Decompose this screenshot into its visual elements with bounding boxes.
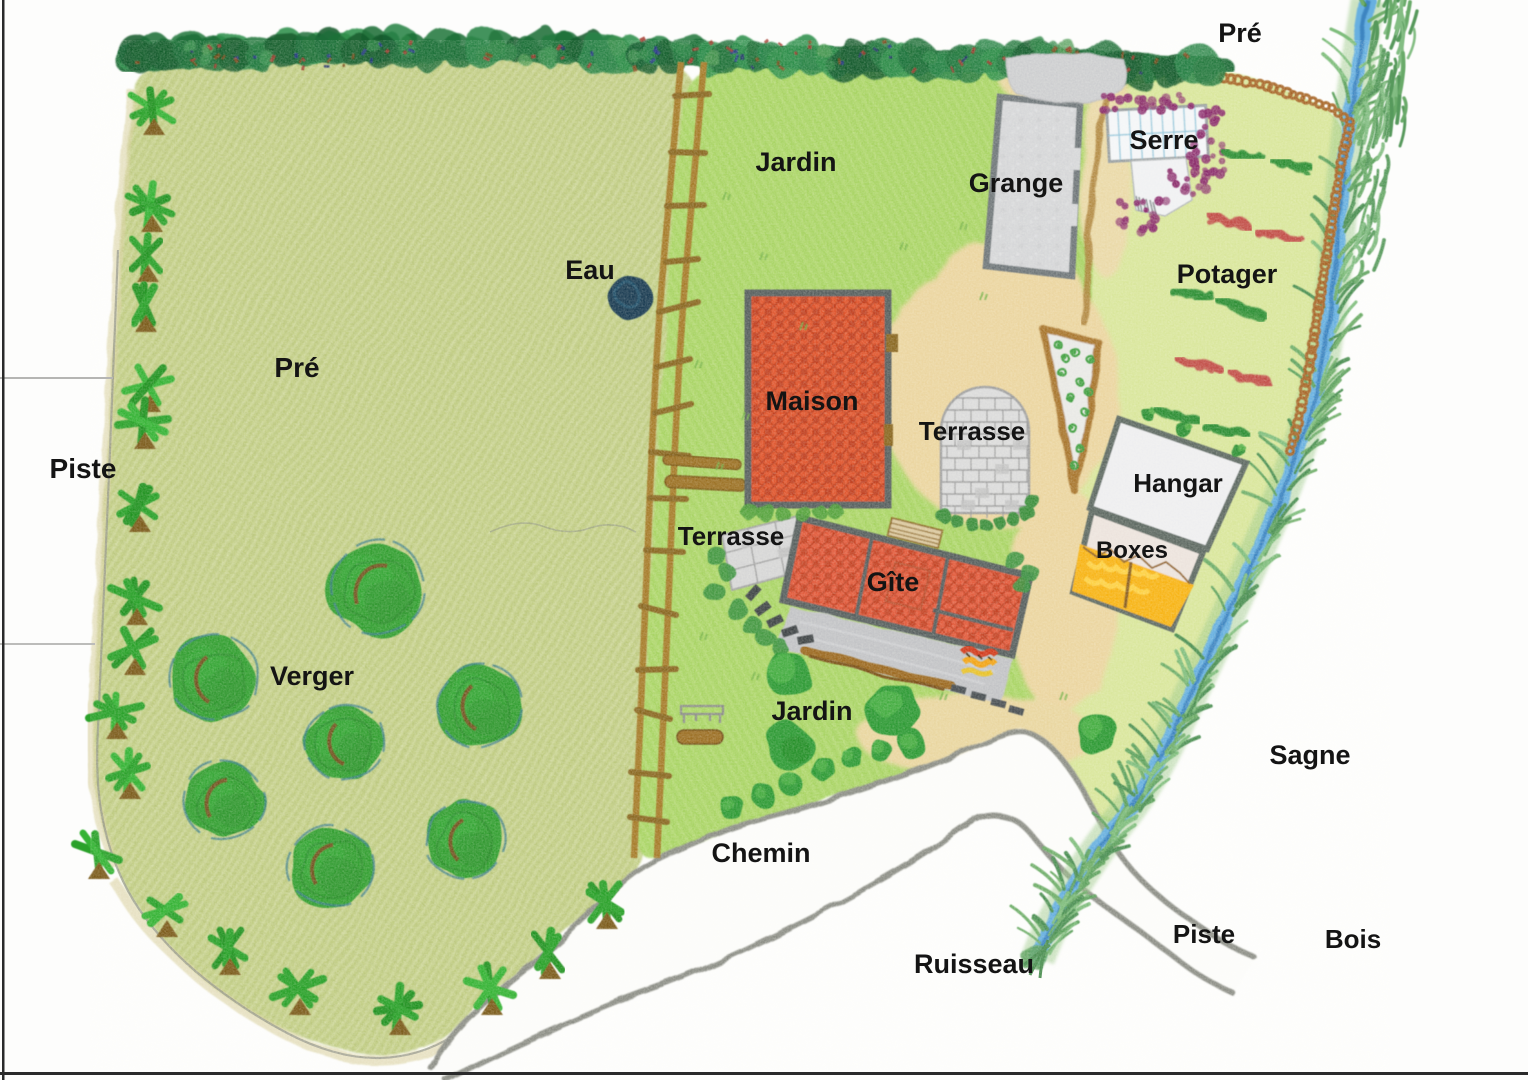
svg-text:Chemin: Chemin [711,838,810,868]
svg-text:Maison: Maison [765,386,858,416]
svg-text:Hangar: Hangar [1133,468,1223,498]
svg-text:Terrasse: Terrasse [678,521,785,551]
svg-text:Verger: Verger [270,661,355,691]
svg-text:Eau: Eau [565,255,615,285]
svg-text:Pré: Pré [274,352,319,383]
svg-text:Potager: Potager [1177,259,1278,289]
svg-text:Grange: Grange [969,168,1064,198]
svg-text:Piste: Piste [50,453,117,484]
svg-text:Piste: Piste [1173,919,1235,949]
svg-text:Boxes: Boxes [1096,537,1168,564]
svg-text:Jardin: Jardin [755,147,836,177]
svg-text:Gîte: Gîte [867,567,920,597]
svg-text:Jardin: Jardin [771,696,852,726]
svg-text:Sagne: Sagne [1269,740,1350,770]
svg-text:Pré: Pré [1218,18,1262,48]
svg-text:Serre: Serre [1129,125,1198,155]
svg-text:Terrasse: Terrasse [919,416,1026,446]
svg-text:Ruisseau: Ruisseau [914,949,1034,979]
svg-text:Bois: Bois [1325,924,1381,954]
